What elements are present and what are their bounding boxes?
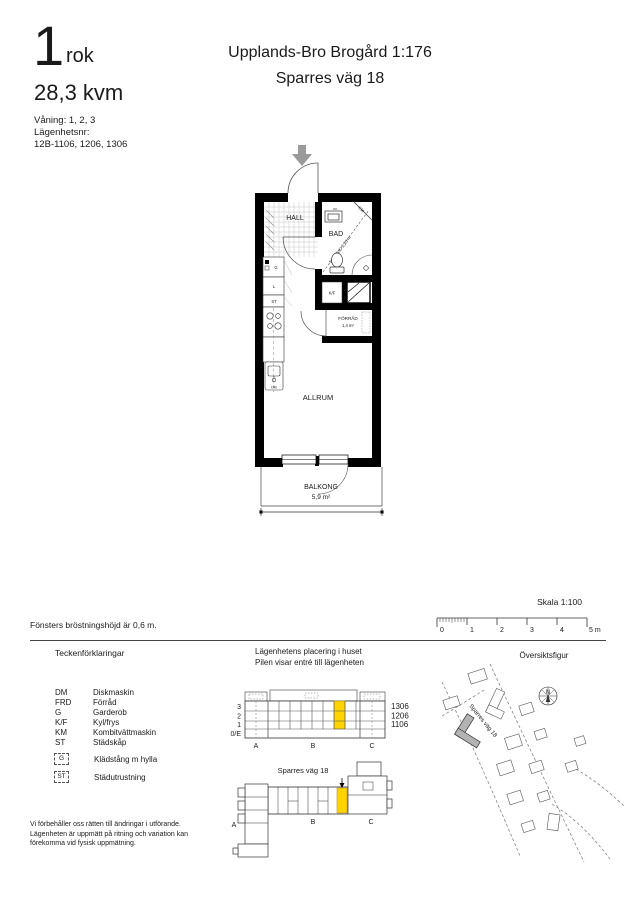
rooms-unit: rok [66,45,94,68]
measure-line [260,508,384,516]
balcony-area-label: 5,9 m² [312,494,331,501]
section-b-label: B [311,743,316,750]
highlighted-apartment-column [334,701,345,729]
legend-list: DMDiskmaskin FRDFörråd GGarderob K/FKyl/… [55,688,156,748]
apartment-1306: 1306 [391,702,409,711]
legend-label: Förråd [93,698,117,708]
placement-title-line2: Pilen visar entré till lägenheten [255,657,364,668]
floor-plan: KM TAKHÖJD 2,25 m BAD HALL K/F FÖRRÅD 1,… [230,140,410,520]
bathroom-sink-icon [325,209,342,222]
balcony-label: BALKONG [304,484,338,491]
page-subtitle: Sparres väg 18 [150,66,510,92]
placement-title-line1: Lägenhetens placering i huset [255,646,364,657]
storage-room: FÖRRÅD 1,4 m² [301,310,370,336]
elevation-roofs [245,690,385,701]
disclaimer-text: Vi förbehåller oss rätten till ändringar… [30,820,188,849]
legend-abbr: ST [55,738,93,748]
scale-label: Skala 1:100 [537,597,582,607]
entrance-door [288,163,318,193]
plan-section-a [233,784,268,857]
divider-line [30,640,606,641]
legend-item: GGarderob [55,708,156,718]
entry-direction-arrow-icon [340,778,345,788]
legend-label: Städutrustning [94,773,146,782]
overview-title: Översiktsfigur [520,651,569,660]
legend-abbr: DM [55,688,93,698]
living-room-label: ALLRUM [303,393,333,402]
bathroom-label: BAD [329,231,343,238]
closet-st-label: ST [271,299,277,304]
legend-boxed-item: G Klädstång m hylla [54,753,157,765]
interior-walls [315,202,381,343]
scale-tick-3: 3 [530,627,534,634]
legend-label: Klädstång m hylla [94,755,157,764]
scale-bar: Skala 1:100 0 1 2 3 4 5 m [428,592,613,637]
rooms-count: 1 [33,18,63,74]
compass-icon: N [539,687,557,705]
apartment-numbers: 12B-1106, 1206, 1306 [34,139,127,151]
legend-abbr: K/F [55,718,93,728]
neighbor-buildings [443,668,586,832]
dashed-symbol-g: G [54,753,69,765]
building-elevation: 3 2 1 0/E 1306 1206 1106 A B C [225,685,425,755]
legend-boxed-item: ST Städutrustning [54,771,157,783]
toilet-icon [330,253,344,273]
section-a-label: A [254,743,259,750]
window-height-note: Fönsters bröstningshöjd är 0,6 m. [30,620,157,630]
legend-item: K/FKyl/frys [55,718,156,728]
legend-abbr: FRD [55,698,93,708]
section-c-label: C [368,819,373,826]
hall-tiles [264,202,318,257]
floor-label-3: 3 [237,704,241,711]
plan-section-b [268,787,348,814]
apartment-1106: 1106 [391,720,409,729]
legend-item: STStädskåp [55,738,156,748]
shaft-hatched [347,282,370,303]
legend-abbr: G [55,708,93,718]
legend-boxed-list: G Klädstång m hylla ST Städutrustning [54,753,157,789]
entry-arrow-icon [292,145,312,166]
floor-label-1: 1 [237,722,241,729]
legend-label: Garderob [93,708,127,718]
scale-tick-end: 5 m [589,627,601,634]
legend-label: Städskåp [93,738,126,748]
legend-item: DMDiskmaskin [55,688,156,698]
placement-title: Lägenhetens placering i huset Pilen visa… [255,646,364,668]
section-c-label: C [369,743,374,750]
scale-tick-1: 1 [470,627,474,634]
building-plan-view: Sparres väg 18 A B C [225,757,405,862]
section-b-label: B [311,819,316,826]
scale-tick-2: 2 [500,627,504,634]
street-label: Sparres väg 18 [278,766,329,775]
legend-title: Teckenförklaringar [55,648,124,658]
hall-label: HALL [286,215,304,222]
floor-label-2: 2 [237,714,241,721]
floors-line: Våning: 1, 2, 3 [34,115,127,127]
storage-area-label: 1,4 m² [342,323,354,328]
apartment-number-label: Lägenhetsnr: [34,127,127,139]
section-a-label: A [232,822,237,829]
storage-label: FÖRRÅD [338,315,358,321]
fridge-cell: K/F [322,282,342,303]
legend-item: FRDFörråd [55,698,156,708]
legend-label: Diskmaskin [93,688,134,698]
dashed-symbol-st: ST [54,771,69,783]
highlighted-apartment-unit [337,788,347,813]
site-overview-map: Översiktsfigur Sparres väg 18 [432,644,632,869]
windows [282,455,348,464]
floorplan-page: { "header": { "rooms_count": "1", "rooms… [0,0,636,900]
dishwasher-label: DM [271,386,277,390]
shower-icon [352,255,372,275]
scale-ruler [437,618,587,627]
scale-tick-4: 4 [560,627,564,634]
closet-g-label: G [274,265,277,270]
closet-door-swings [284,260,292,306]
legend-item: KMKombitvättmaskin [55,728,156,738]
scale-tick-0: 0 [440,627,444,634]
legend-label: Kyl/frys [93,718,119,728]
plan-section-c [348,762,392,814]
floor-label-0e: 0/E [230,731,241,738]
compass-north-label: N [546,690,550,696]
legend-label: Kombitvättmaskin [93,728,156,738]
apartment-area: 28,3 kvm [34,80,123,106]
page-title: Upplands-Bro Brogård 1:176 [150,40,510,66]
elevation-body [245,701,385,738]
washer-corner: KM [354,202,372,220]
fridge-label: K/F [329,291,336,296]
legend-abbr: KM [55,728,93,738]
